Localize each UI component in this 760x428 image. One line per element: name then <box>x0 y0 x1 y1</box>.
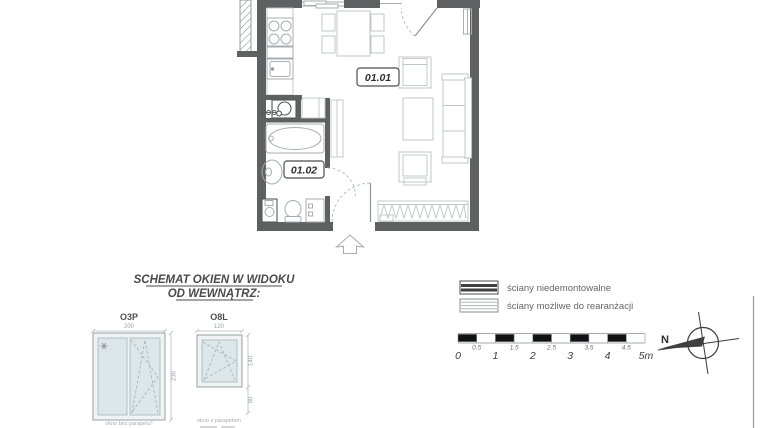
armchair <box>399 152 431 185</box>
dining-set <box>322 11 384 56</box>
chair <box>371 14 384 31</box>
washing-machine-icon <box>272 100 296 118</box>
entrance-door <box>332 183 371 222</box>
scale-minor-label: 1.5 <box>510 345 519 352</box>
schematic-title-line2: OD WEWNĄTRZ: <box>168 288 261 300</box>
window-opening-symbol <box>302 1 344 8</box>
tall-cabinet <box>302 98 325 118</box>
scale-bar: 0.5 1.5 2.5 3.5 4.5 0 1 2 3 4 5m <box>455 334 653 362</box>
north-compass: N <box>658 312 739 374</box>
tilt-turn-pane <box>202 340 237 382</box>
height-dimension: 230 <box>172 370 178 381</box>
bathroom-door-swing <box>328 168 356 196</box>
room-number: 01.02 <box>291 165 317 177</box>
bathroom-cabinet <box>306 199 324 222</box>
kitchen-fixtures <box>267 8 293 95</box>
entrance-arrow-icon <box>337 235 364 254</box>
counter-segment <box>267 47 293 58</box>
chair <box>322 36 335 53</box>
window-name: O8L <box>210 312 228 322</box>
window-schematic: SCHEMAT OKIEN W WIDOKU OD WEWNĄTRZ: O3P … <box>91 274 295 428</box>
legend-label: ściany niedemontowalne <box>507 283 611 294</box>
armchair <box>399 57 431 88</box>
dining-table <box>337 11 370 56</box>
corner-sink-icon <box>262 199 277 222</box>
floor-plan: 01.01 01.02 <box>237 0 480 254</box>
architectural-drawing-sheet: 01.01 01.02 SCHEMAT OKIEN W WIDOKU OD WE… <box>0 0 760 428</box>
coffee-table <box>403 98 433 140</box>
bathtub-icon <box>266 124 324 153</box>
wardrobe-icon <box>378 201 468 222</box>
scale-major-label: 4 <box>605 350 611 362</box>
kitchen-sink-icon <box>267 59 293 79</box>
legend-swatch-movable-wall <box>460 299 498 312</box>
scale-major-label: 1 <box>492 350 498 362</box>
room-number: 01.01 <box>365 72 391 84</box>
toilet-icon <box>285 201 301 223</box>
north-label: N <box>661 334 669 346</box>
scale-minor-label: 2.5 <box>546 345 556 352</box>
chair <box>371 36 384 53</box>
kitchen-counter <box>267 8 293 95</box>
width-dimension: 200 <box>124 324 135 330</box>
width-dimension: 120 <box>214 324 225 330</box>
scale-major-label: 2 <box>529 350 536 362</box>
legend-swatch-solid-wall <box>460 281 498 294</box>
window-caption: okno bez parapetu* <box>105 421 154 427</box>
room-label-0102: 01.02 <box>284 161 324 178</box>
washbasin-icon <box>262 160 282 184</box>
window-name: O3P <box>120 312 138 322</box>
scale-minor-label: 0.5 <box>472 345 481 352</box>
stove-icon <box>267 18 293 46</box>
scale-minor-label: 3.5 <box>584 345 593 352</box>
wall-cap <box>237 51 257 57</box>
hall-cabinet <box>331 100 343 157</box>
window-O3P: O3P 200 230 okno bez parapetu* <box>91 312 178 427</box>
scale-major-label: 0 <box>455 350 461 362</box>
fixed-pane <box>98 338 127 415</box>
chair <box>322 14 335 31</box>
sill-height-dimension: 90 <box>249 396 255 403</box>
sofa-icon <box>442 74 472 163</box>
height-dimension: 140 <box>249 355 255 366</box>
schematic-title-line1: SCHEMAT OKIEN W WIDOKU <box>134 274 295 286</box>
room-label-0101: 01.01 <box>357 68 399 86</box>
legend-label: ściany możliwe do rearanżacji <box>507 301 633 312</box>
balcony-door <box>380 4 437 37</box>
tilt-turn-pane <box>130 338 160 415</box>
scale-major-label: 3 <box>567 350 573 362</box>
wall-legend: ściany niedemontowalne ściany możliwe do… <box>460 281 633 312</box>
drawing-canvas: 01.01 01.02 SCHEMAT OKIEN W WIDOKU OD WE… <box>0 0 760 428</box>
scale-minor-label: 4.5 <box>622 345 631 352</box>
window-caption: okno z parapetem <box>197 418 241 424</box>
hatched-exterior-wall <box>240 0 251 52</box>
window-O8L: O8L 120 140 90 okno z parapetem <box>195 312 255 428</box>
living-furniture <box>399 57 472 185</box>
scale-major-label: 5m <box>639 350 654 362</box>
scale-segments <box>458 334 626 341</box>
